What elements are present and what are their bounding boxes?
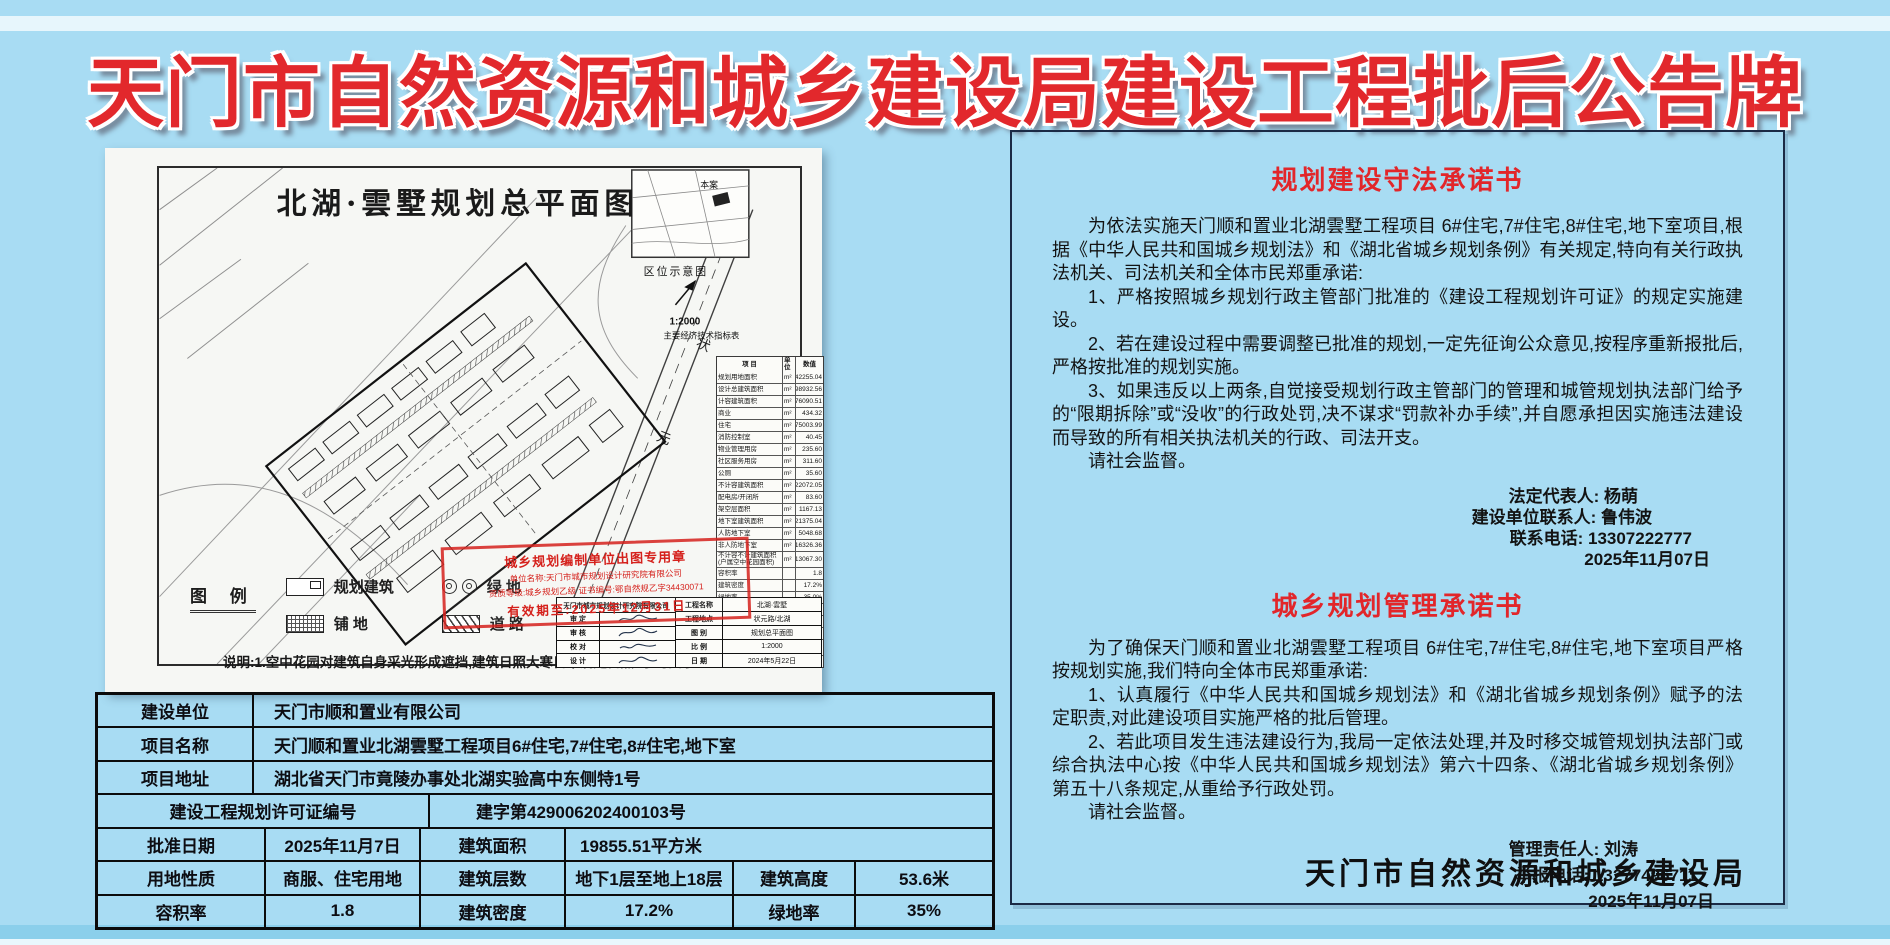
row-label: 绿地率 — [732, 896, 854, 927]
indicator-row: 消防控制室 m² 40.45 — [717, 431, 823, 443]
indicator-name: 公厕 — [717, 468, 782, 479]
indicator-header-name: 项 目 — [717, 357, 782, 372]
field-label: 比 例 — [676, 640, 723, 653]
section1-title: 规划建设守法承诺书 — [1052, 160, 1743, 197]
section1-signature: 法定代表人: 杨萌 建设单位联系人: 鲁伟波 联系电话: 13307222777… — [1052, 486, 1743, 570]
indicator-unit: m² — [782, 384, 795, 395]
site-plan-title: 北湖·雲墅规划总平面图 — [277, 187, 639, 222]
indicator-row: 规划用地面积 m² 42255.04 — [717, 372, 823, 383]
proofreader-label: 校 对 — [557, 641, 600, 654]
permit-label: 建设工程规划许可证编号 — [98, 795, 428, 826]
indicator-name: 社区服务用房 — [717, 456, 782, 467]
indicator-unit: m² — [782, 528, 795, 539]
indicator-name: 计容建筑面积 — [717, 396, 782, 407]
table-row: 批准日期 2025年11月7日 建筑面积 19855.51平方米 — [98, 827, 992, 860]
indicator-value: 311.60 — [795, 456, 823, 467]
section1-paragraphs: 为依法实施天门顺和置业北湖雲墅工程项目 6#住宅,7#住宅,8#住宅,地下室项目… — [1052, 215, 1743, 474]
field-label: 图 别 — [676, 626, 723, 639]
indicator-row: 公厕 m² 35.60 — [717, 467, 823, 479]
row-label: 批准日期 — [98, 829, 264, 860]
board-title: 天门市自然资源和城乡建设局建设工程批后公告牌 — [0, 32, 1890, 143]
indicator-value: 17.2% — [795, 580, 823, 591]
row-label: 建设单位 — [98, 695, 252, 726]
table-row: 容积率 1.8 建筑密度 17.2% 绿地率 35% — [98, 894, 992, 927]
inset-label: 区位示意图 — [644, 264, 708, 278]
contact-phone: 联系电话: 13307222777 — [1052, 528, 1743, 549]
unit-contact: 建设单位联系人: 鲁伟波 — [1052, 507, 1743, 528]
indicator-row: 地下室建筑面积 m² 21375.04 — [717, 515, 823, 527]
table-row: 项目名称 天门顺和置业北湖雲墅工程项目6#住宅,7#住宅,8#住宅,地下室 — [98, 726, 992, 759]
indicator-value: 75003.99 — [795, 420, 823, 431]
signature-date: 2025年11月07日 — [1052, 549, 1743, 570]
indicator-header-value: 数值 — [795, 357, 823, 372]
planning-stamp: 城乡规划编制单位出图专用章 单位名称:天门市城市规划设计研究院有限公司 资质等级… — [441, 537, 752, 630]
row-value: 17.2% — [564, 896, 732, 927]
legend-label: 铺 地 — [334, 613, 368, 634]
paragraph: 2、若在建设过程中需要调整已批准的规划,一定先征询公众意见,按程序重新报批后,严… — [1052, 333, 1743, 380]
indicator-unit: m² — [782, 552, 795, 567]
indicator-name: 架空层面积 — [717, 504, 782, 515]
signature-scribble — [600, 641, 675, 654]
reviewer-label: 审 核 — [557, 627, 600, 640]
row-value: 天门市顺和置业有限公司 — [252, 695, 992, 726]
paragraph: 为了确保天门顺和置业北湖雲墅工程项目 6#住宅,7#住宅,8#住宅,地下室项目严… — [1052, 637, 1743, 684]
indicator-name: 消防控制室 — [717, 432, 782, 443]
indicator-value: 22072.05 — [795, 480, 823, 491]
indicator-name: 地下室建筑面积 — [717, 516, 782, 527]
indicator-value: 42255.04 — [795, 372, 823, 383]
indicator-header-unit: 单位 — [782, 357, 795, 372]
indicator-name: 配电房/开闭所 — [717, 492, 782, 503]
commitment-panel: 规划建设守法承诺书 为依法实施天门顺和置业北湖雲墅工程项目 6#住宅,7#住宅,… — [1010, 130, 1785, 905]
indicator-value: 235.60 — [795, 444, 823, 455]
designer-label: 设 计 — [557, 654, 600, 667]
indicator-name: 物业管理用房 — [717, 444, 782, 455]
indicator-unit — [782, 580, 795, 591]
field-value: 2024年5月22日 — [723, 654, 821, 667]
indicator-value: 21375.04 — [795, 516, 823, 527]
row-label: 建筑密度 — [419, 896, 564, 927]
row-value: 2025年11月7日 — [264, 829, 419, 860]
field-label: 日 期 — [676, 654, 723, 667]
row-label: 项目名称 — [98, 728, 252, 759]
indicator-table-title: 主要经济技术指标表 — [664, 331, 740, 341]
building-symbol — [286, 578, 324, 596]
paragraph: 3、如果违反以上两条,自觉接受规划行政主管部门的管理和城管规划执法部门给予的“限… — [1052, 380, 1743, 451]
title-block-field: 图 别 规划总平面图 — [676, 626, 821, 640]
title-block-row: 设 计 — [557, 654, 675, 667]
indicator-unit: m² — [782, 480, 795, 491]
table-row: 建设单位 天门市顺和置业有限公司 — [98, 695, 992, 726]
indicator-unit: m² — [782, 444, 795, 455]
indicator-unit: m² — [782, 372, 795, 383]
permit-value: 建字第429006202400103号 — [428, 795, 992, 826]
indicator-unit: m² — [782, 540, 795, 551]
table-row: 项目地址 湖北省天门市竟陵办事处北湖实验高中东侧特1号 — [98, 760, 992, 793]
inset-site-marker: 本案 — [700, 179, 718, 190]
project-info-table: 建设单位 天门市顺和置业有限公司 项目名称 天门顺和置业北湖雲墅工程项目6#住宅… — [95, 692, 995, 930]
indicator-row: 住宅 m² 75003.99 — [717, 419, 823, 431]
row-value: 53.6米 — [854, 862, 992, 893]
paragraph: 请社会监督。 — [1052, 801, 1743, 825]
site-plan-sheet: 状 元 — [105, 148, 822, 692]
indicator-name: 设计总建筑面积 — [717, 384, 782, 395]
indicator-value: 1.8 — [795, 568, 823, 579]
photo-top-strip — [0, 16, 1890, 31]
legend-item-building: 规划建筑 — [286, 576, 394, 597]
section2-paragraphs: 为了确保天门顺和置业北湖雲墅工程项目 6#住宅,7#住宅,8#住宅,地下室项目严… — [1052, 637, 1743, 825]
indicator-name: 规划用地面积 — [717, 372, 782, 383]
indicator-value: 434.32 — [795, 408, 823, 419]
indicator-value: 35.60 — [795, 468, 823, 479]
indicator-value: 76090.51 — [795, 396, 823, 407]
indicator-unit: m² — [782, 408, 795, 419]
location-inset: 本案 — [632, 170, 749, 257]
indicator-row: 计容建筑面积 m² 76090.51 — [717, 395, 823, 407]
indicator-name: 住宅 — [717, 420, 782, 431]
section2-title: 城乡规划管理承诺书 — [1052, 586, 1743, 623]
signature-scribble — [600, 654, 675, 667]
title-block-row: 审 核 — [557, 627, 675, 641]
indicator-value: 98932.56 — [795, 384, 823, 395]
indicator-value: 16326.36 — [795, 540, 823, 551]
indicator-value: 13067.30 — [795, 552, 823, 567]
row-value: 商服、住宅用地 — [264, 862, 419, 893]
indicator-unit: m² — [782, 420, 795, 431]
title-block-row: 校 对 — [557, 641, 675, 655]
row-label: 容积率 — [98, 896, 264, 927]
indicator-value: 5048.68 — [795, 528, 823, 539]
indicator-row: 物业管理用房 m² 235.60 — [717, 443, 823, 455]
row-value: 湖北省天门市竟陵办事处北湖实验高中东侧特1号 — [252, 762, 992, 793]
indicator-unit — [782, 568, 795, 579]
photo-bottom-edge — [0, 939, 1890, 945]
legend-label: 规划建筑 — [334, 576, 394, 597]
title-block-field: 比 例 1:2000 — [676, 640, 821, 654]
parking-strips — [303, 316, 597, 579]
indicator-table-header: 项 目 单位 数值 — [717, 357, 823, 372]
indicator-unit: m² — [782, 492, 795, 503]
indicator-unit: m² — [782, 456, 795, 467]
indicator-value: 1167.13 — [795, 504, 823, 515]
indicator-value: 40.45 — [795, 432, 823, 443]
signature-scribble — [600, 627, 675, 640]
indicator-unit: m² — [782, 504, 795, 515]
indicator-unit: m² — [782, 468, 795, 479]
legend-item-paving: 铺 地 — [286, 613, 394, 634]
scale-label: 1:2000 — [669, 317, 700, 328]
paragraph: 为依法实施天门顺和置业北湖雲墅工程项目 6#住宅,7#住宅,8#住宅,地下室项目… — [1052, 215, 1743, 286]
field-value: 1:2000 — [723, 640, 821, 653]
paragraph: 2、若此项目发生违法建设行为,我局一定依法处理,并及时移交城管规划执法部门或综合… — [1052, 731, 1743, 802]
title-block-field: 日 期 2024年5月22日 — [676, 654, 821, 667]
paragraph: 1、认真履行《中华人民共和国城乡规划法》和《湖北省城乡规划条例》赋予的法定职责,… — [1052, 684, 1743, 731]
indicator-row: 社区服务用房 m² 311.60 — [717, 455, 823, 467]
legend-heading: 图 例 — [190, 582, 256, 613]
paragraph: 请社会监督。 — [1052, 450, 1743, 474]
indicator-unit: m² — [782, 396, 795, 407]
row-label: 项目地址 — [98, 762, 252, 793]
indicator-value: 83.60 — [795, 492, 823, 503]
row-label: 建筑层数 — [419, 862, 564, 893]
row-label: 用地性质 — [98, 862, 264, 893]
row-value: 1.8 — [264, 896, 419, 927]
indicator-row: 架空层面积 m² 1167.13 — [717, 503, 823, 515]
indicator-name: 不计容建筑面积 — [717, 480, 782, 491]
row-value: 35% — [854, 896, 992, 927]
table-row: 用地性质 商服、住宅用地 建筑层数 地下1层至地上18层 建筑高度 53.6米 — [98, 860, 992, 893]
row-value: 天门顺和置业北湖雲墅工程项目6#住宅,7#住宅,8#住宅,地下室 — [252, 728, 992, 759]
paragraph: 1、严格按照城乡规划行政主管部门批准的《建设工程规划许可证》的规定实施建设。 — [1052, 286, 1743, 333]
indicator-row: 设计总建筑面积 m² 98932.56 — [717, 383, 823, 395]
row-value: 19855.51平方米 — [564, 829, 992, 860]
row-label: 建筑面积 — [419, 829, 564, 860]
issuing-agency: 天门市自然资源和城乡建设局 — [1305, 849, 1747, 893]
row-label: 建筑高度 — [732, 862, 854, 893]
indicator-unit: m² — [782, 516, 795, 527]
table-row: 建设工程规划许可证编号 建字第429006202400103号 — [98, 793, 992, 826]
row-value: 地下1层至地上18层 — [564, 862, 732, 893]
field-value: 规划总平面图 — [723, 626, 821, 639]
indicator-row: 配电房/开闭所 m² 83.60 — [717, 491, 823, 503]
indicator-name: 商业 — [717, 408, 782, 419]
indicator-row: 不计容建筑面积 m² 22072.05 — [717, 479, 823, 491]
paving-symbol — [286, 615, 324, 633]
indicator-row: 商业 m² 434.32 — [717, 407, 823, 419]
indicator-unit: m² — [782, 432, 795, 443]
legal-representative: 法定代表人: 杨萌 — [1052, 486, 1743, 507]
